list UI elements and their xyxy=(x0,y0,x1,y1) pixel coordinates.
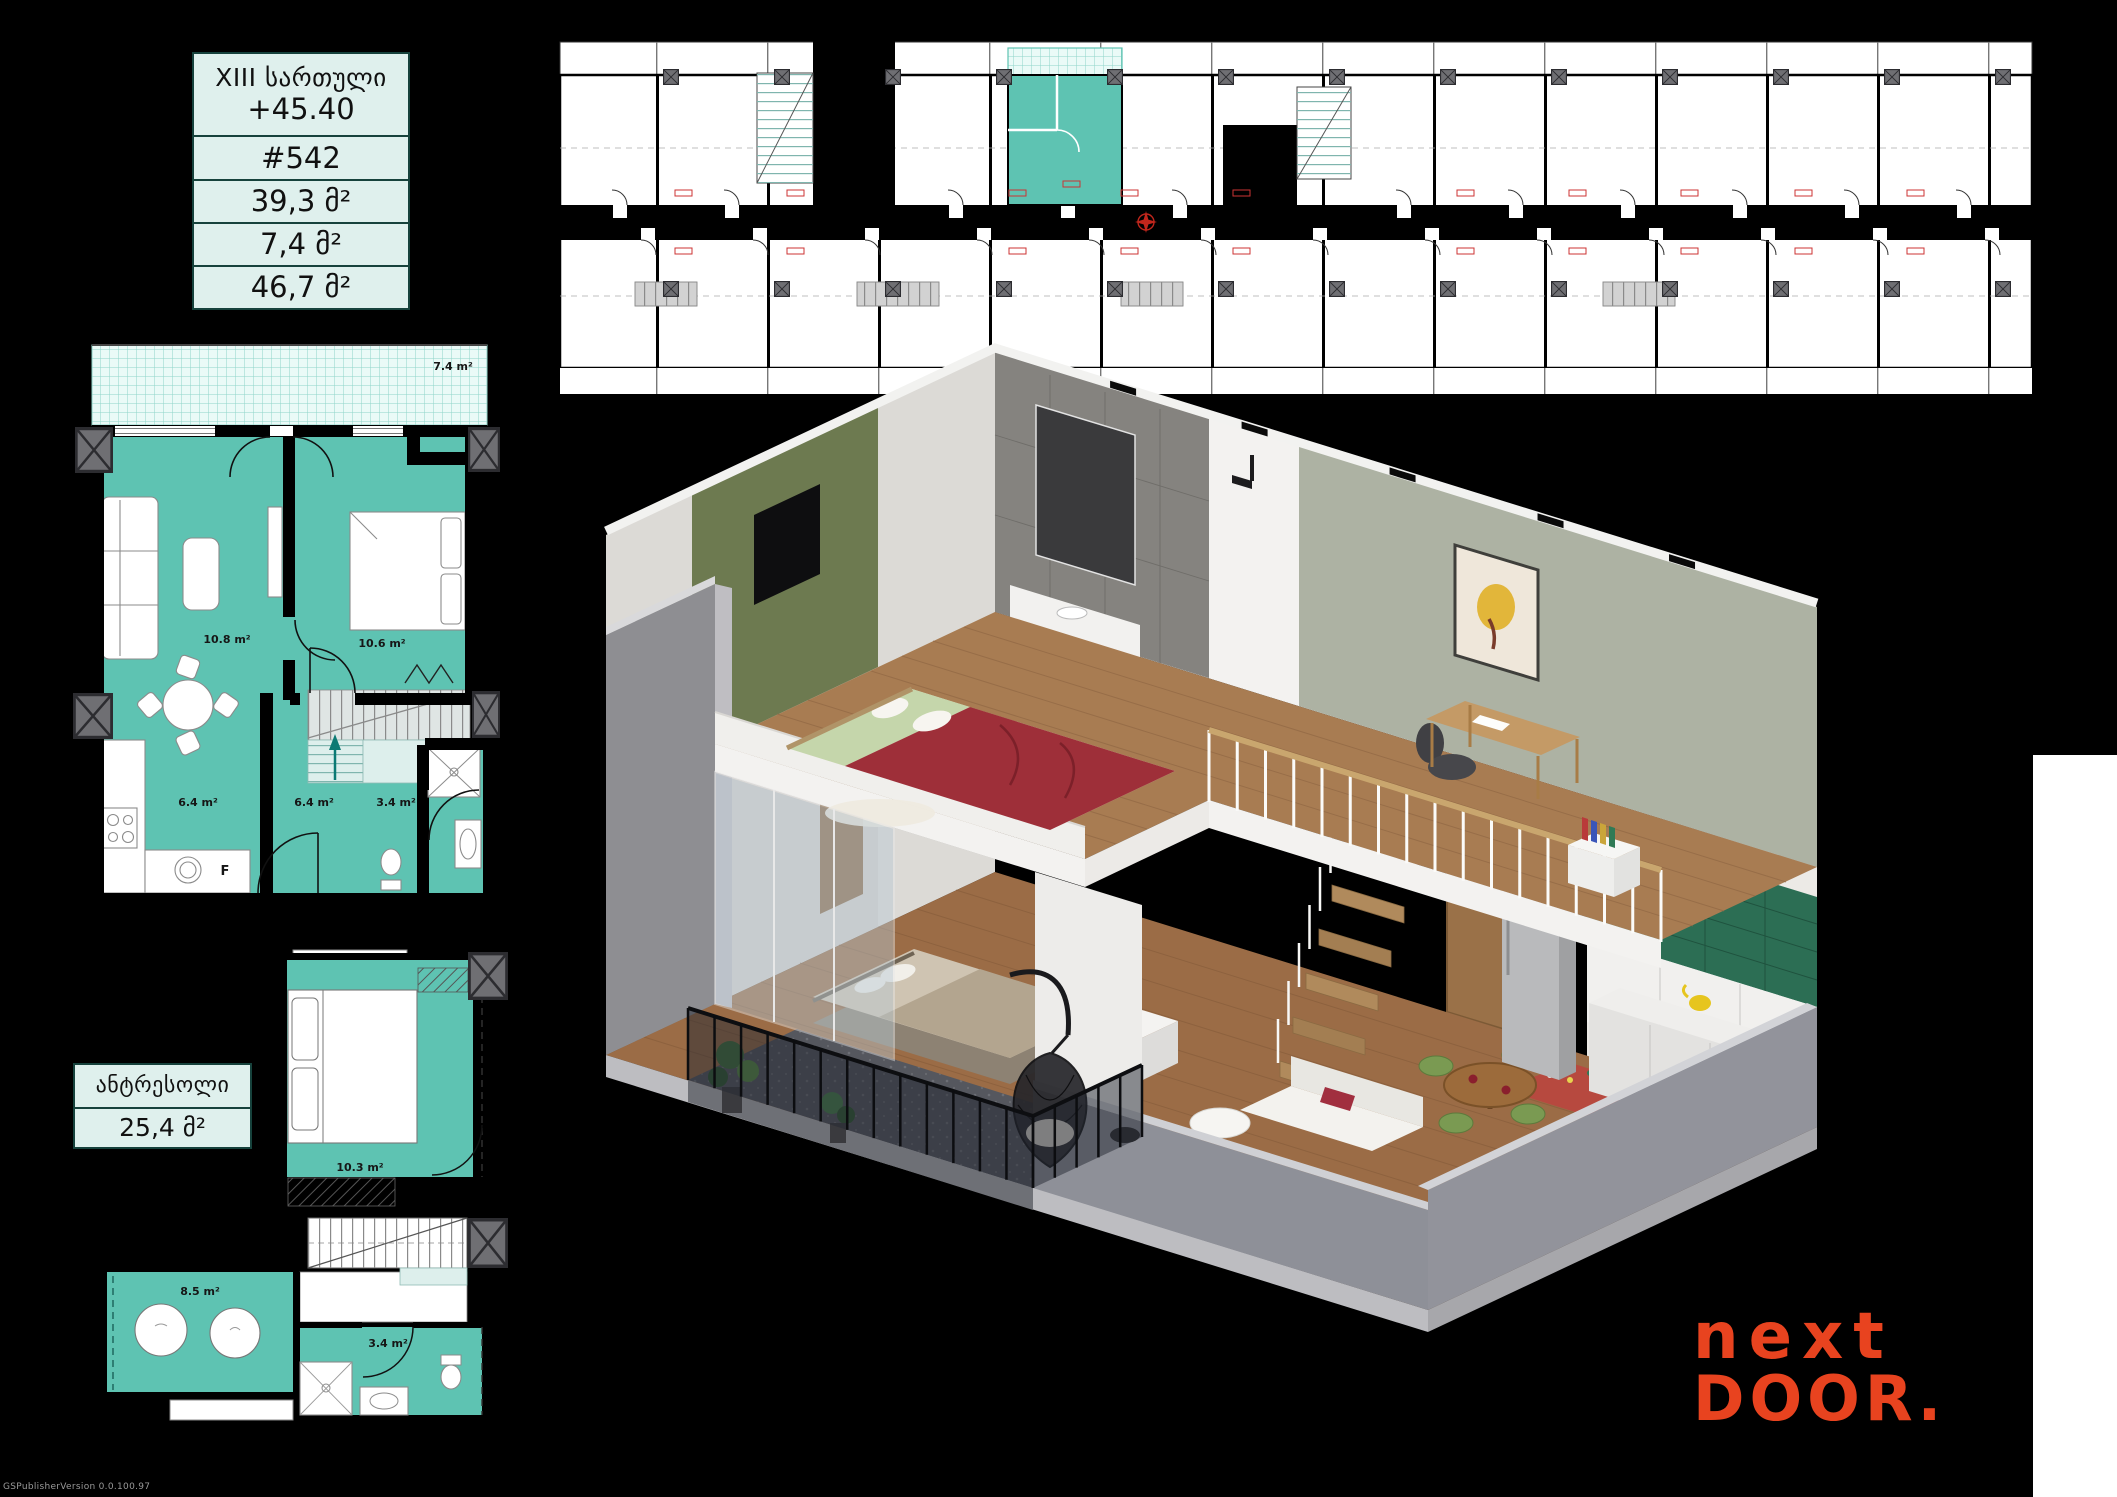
logo-line1: next xyxy=(1693,1306,2023,1369)
overview-highlighted-unit xyxy=(1008,48,1122,205)
mezz-bath-area-label: 3.4 m² xyxy=(368,1337,408,1350)
dining-table xyxy=(1444,1063,1536,1107)
area-total: 46,7 მ² xyxy=(194,267,408,308)
overview-stairwell-2 xyxy=(1297,87,1351,179)
pillow xyxy=(441,518,461,568)
sofa xyxy=(102,497,158,659)
cad-watermark: GSPublisherVersion 0.0.100.97 xyxy=(3,1482,150,1492)
apartment-info-table: XIII სართული +45.40 #542 39,3 მ² 7,4 მ² … xyxy=(192,52,410,310)
overview-core-elevator xyxy=(813,40,895,205)
plan-balcony: 7.4 m² xyxy=(92,345,487,425)
mezzanine-plan: 10.3 m² 8.5 m² 3.4 m² xyxy=(55,940,515,1430)
mezz-railing-hatch xyxy=(288,1178,395,1206)
hall-area-label: 6.4 m² xyxy=(294,796,334,809)
elevation-value: +45.40 xyxy=(247,92,354,126)
area-balcony: 7,4 მ² xyxy=(194,224,408,267)
overview-core-shaft xyxy=(1223,125,1297,205)
pillow xyxy=(292,998,318,1060)
mezz-lounge: 8.5 m² xyxy=(100,1265,300,1420)
left-exterior-wall xyxy=(606,584,715,1055)
mezz-bath: 3.4 m² xyxy=(300,1322,482,1423)
pouf-chair xyxy=(210,1308,260,1358)
dining-table xyxy=(163,680,213,730)
main-apartment-plan: 7.4 m² xyxy=(55,340,515,980)
balcony-area-label: 7.4 m² xyxy=(433,360,473,373)
bedroom-area-label: 10.6 m² xyxy=(358,637,405,650)
mezz-bedroom-area-label: 10.3 m² xyxy=(336,1161,383,1174)
tv-stand xyxy=(268,507,282,597)
living-area-label: 10.8 m² xyxy=(203,633,250,646)
mezz-toilet xyxy=(441,1365,461,1389)
bath-area-label: 3.4 m² xyxy=(376,796,416,809)
overview-stairwell-1 xyxy=(757,73,813,183)
mezz-toilet-tank xyxy=(441,1355,461,1365)
desk-chair xyxy=(1428,754,1476,780)
right-margin-strip xyxy=(2033,755,2117,1497)
bathroom-basin xyxy=(1057,607,1087,619)
area-main: 39,3 მ² xyxy=(194,181,408,224)
kitchen-area-label: 6.4 m² xyxy=(178,796,218,809)
nextdoor-logo: next DOOR. xyxy=(1693,1306,2023,1429)
bath-sink xyxy=(455,820,481,868)
sink-label: F xyxy=(221,864,230,879)
mezz-columns xyxy=(469,954,506,1267)
kitchen-sink xyxy=(175,857,201,883)
mezz-stairs xyxy=(300,1218,467,1322)
coffee-table xyxy=(183,538,219,610)
floorplan-sheet: { "page": { "bg": "#000000", "watermark"… xyxy=(0,0,2117,1497)
pouf-chair xyxy=(135,1304,187,1356)
bathroom-mirror xyxy=(1036,405,1135,585)
pillow xyxy=(292,1068,318,1130)
logo-line2: DOOR. xyxy=(1693,1369,2023,1430)
toilet xyxy=(381,849,401,875)
pillow xyxy=(441,574,461,624)
apartment-number: #542 xyxy=(194,137,408,180)
floor-row: XIII სართული +45.40 xyxy=(194,54,408,137)
yellow-kettle xyxy=(1689,995,1711,1011)
overview-unit-balcony xyxy=(1008,48,1122,75)
toilet-tank xyxy=(381,880,401,890)
mezz-lounge-area-label: 8.5 m² xyxy=(180,1285,220,1298)
logo-dot: . xyxy=(1918,1362,1942,1435)
mezz-bedroom: 10.3 m² xyxy=(280,953,482,1206)
overview-corridor xyxy=(560,205,2032,240)
stove xyxy=(103,808,137,848)
floor-label: XIII სართული xyxy=(215,63,386,92)
mezz-sink xyxy=(360,1387,408,1415)
